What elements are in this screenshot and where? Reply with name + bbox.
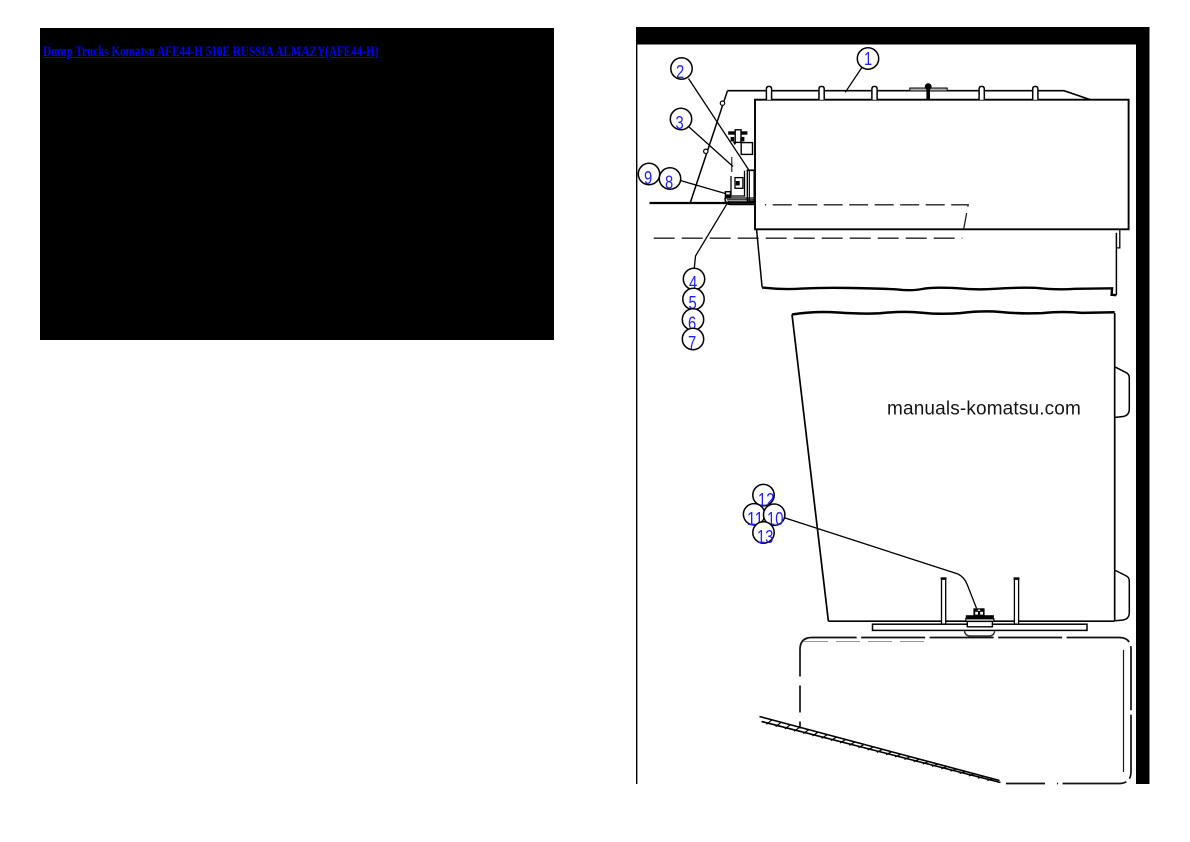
svg-text:7: 7 (688, 333, 696, 353)
svg-text:8: 8 (665, 173, 673, 193)
svg-text:3: 3 (676, 113, 684, 133)
svg-text:1: 1 (864, 49, 872, 69)
svg-text:9: 9 (644, 168, 652, 188)
svg-text:13: 13 (757, 527, 773, 547)
svg-text:2: 2 (676, 62, 684, 82)
svg-text:manuals-komatsu.com: manuals-komatsu.com (887, 399, 1081, 420)
